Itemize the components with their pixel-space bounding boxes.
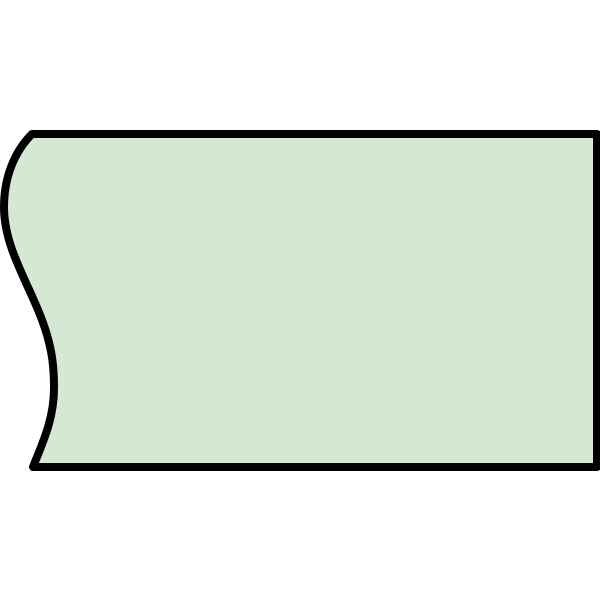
- diagram-svg: [0, 0, 600, 600]
- broken-bar-shape: [4, 134, 597, 467]
- drawing-canvas: [0, 0, 600, 600]
